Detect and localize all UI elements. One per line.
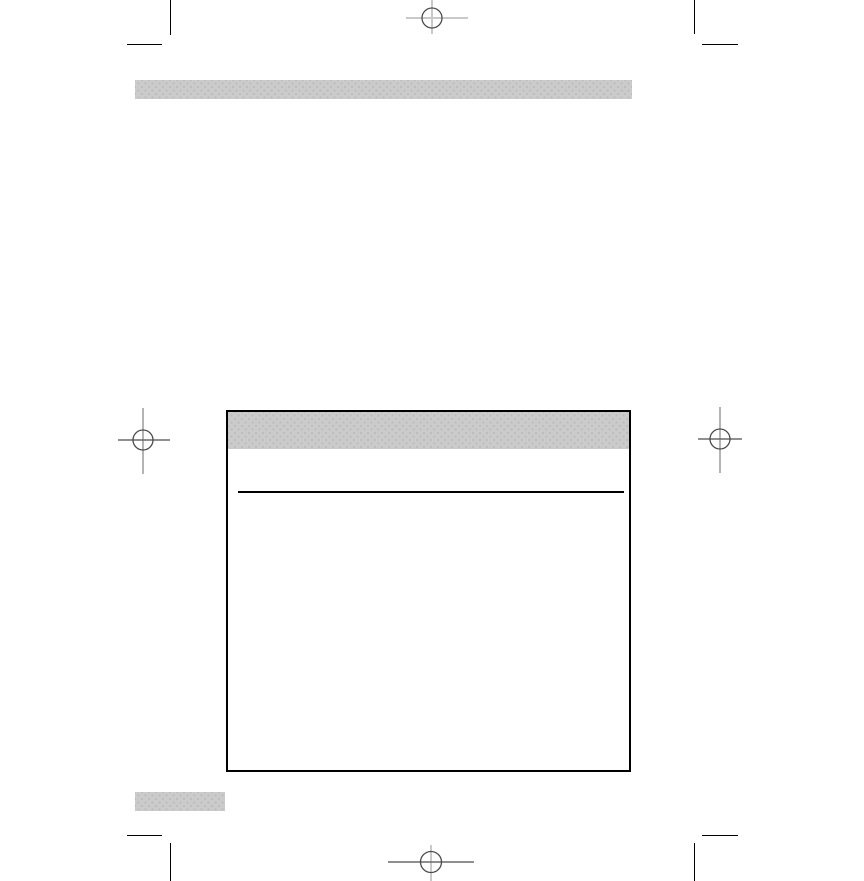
registration-mark-left-icon xyxy=(113,408,173,474)
top-gray-bar xyxy=(135,80,632,99)
registration-mark-bottom-icon xyxy=(388,842,476,881)
content-box-header-bar xyxy=(228,412,629,449)
crop-mark-top-right-horizontal xyxy=(702,44,738,45)
crop-mark-bottom-left-vertical xyxy=(170,843,171,881)
content-box xyxy=(226,410,631,772)
crop-mark-bottom-right-horizontal xyxy=(702,835,738,836)
registration-mark-top-icon xyxy=(396,0,476,40)
content-box-horizontal-rule xyxy=(238,491,624,493)
crop-mark-top-left-horizontal xyxy=(127,44,162,45)
document-page xyxy=(0,0,864,881)
crop-mark-bottom-left-horizontal xyxy=(127,835,162,836)
crop-mark-top-right-vertical xyxy=(694,0,695,34)
bottom-left-gray-swatch xyxy=(135,792,225,811)
registration-mark-right-icon xyxy=(690,407,750,473)
crop-mark-top-left-vertical xyxy=(170,0,171,35)
crop-mark-bottom-right-vertical xyxy=(694,843,695,881)
